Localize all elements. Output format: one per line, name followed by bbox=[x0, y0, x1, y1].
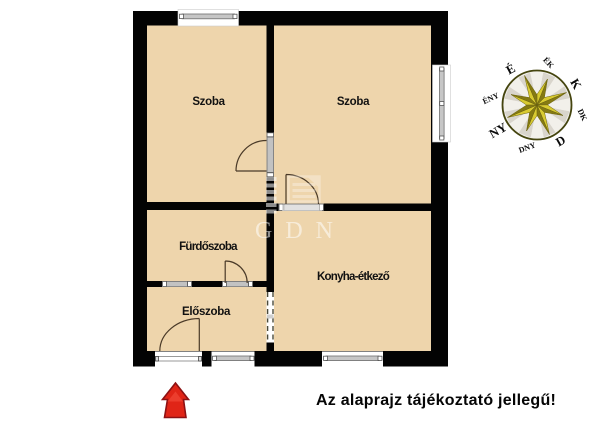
svg-text:Konyha-étkező: Konyha-étkező bbox=[317, 271, 390, 283]
svg-text:Az alaprajz tájékoztató jelleg: Az alaprajz tájékoztató jellegű! bbox=[316, 392, 556, 409]
svg-text:Előszoba: Előszoba bbox=[182, 306, 231, 318]
svg-text:GDN: GDN bbox=[255, 218, 346, 244]
svg-text:Fürdőszoba: Fürdőszoba bbox=[179, 241, 238, 253]
svg-text:Szoba: Szoba bbox=[337, 96, 370, 108]
svg-text:Szoba: Szoba bbox=[192, 96, 225, 108]
